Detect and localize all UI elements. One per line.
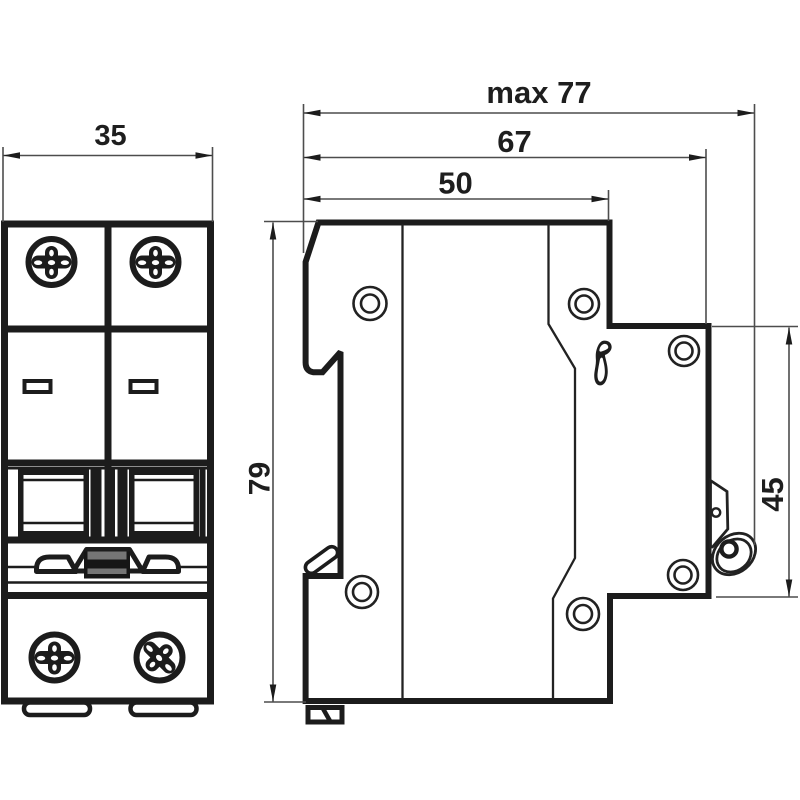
- svg-text:67: 67: [497, 124, 531, 159]
- svg-text:50: 50: [438, 166, 472, 201]
- svg-text:45: 45: [755, 477, 790, 511]
- svg-text:79: 79: [244, 462, 277, 495]
- svg-text:max 77: max 77: [486, 75, 591, 110]
- svg-text:35: 35: [94, 120, 126, 152]
